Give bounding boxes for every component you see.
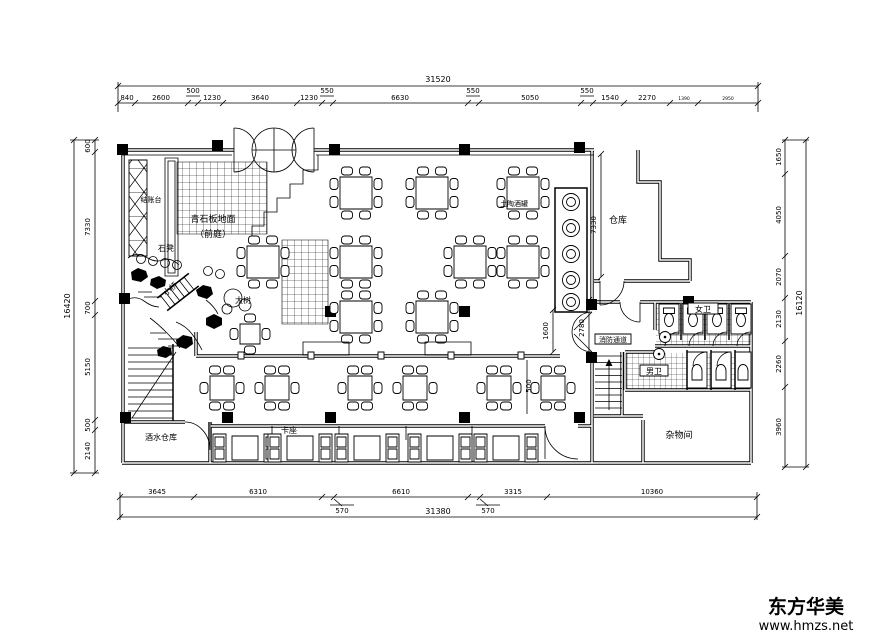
booth-seat	[213, 434, 277, 462]
dim-top-8: 550	[466, 87, 479, 95]
dim-top-9: 5050	[521, 94, 539, 102]
dining-table	[330, 291, 382, 343]
dim-bottom-3: 6610	[392, 488, 410, 496]
dim-fire-passage: 2780	[578, 319, 586, 337]
watermark-site: www.hmzs.net	[759, 619, 854, 634]
booth-seat	[268, 434, 332, 462]
booth-seat	[335, 434, 399, 462]
dim-top-0: 840	[120, 94, 133, 102]
label-cashier: 结账台	[141, 195, 162, 204]
dining-table	[497, 236, 549, 288]
dim-top-5: 1230	[300, 94, 318, 102]
dim-right-5: 3960	[775, 418, 783, 436]
dining-table	[338, 366, 382, 410]
dim-bottom-2: 570	[335, 507, 348, 515]
dining-table	[406, 167, 458, 219]
dim-left-0: 600	[84, 139, 92, 152]
dim-top-2: 500	[186, 87, 199, 95]
wine-jar-rack	[555, 188, 587, 312]
dim-left-3: 5150	[84, 358, 92, 376]
dim-left-1: 7330	[84, 218, 92, 236]
dim-left-total: 16420	[63, 293, 72, 318]
dim-warehouse-depth: 7330	[590, 216, 598, 234]
dim-right-2: 2070	[775, 268, 783, 286]
label-wine-jars: 土陶酒罐	[500, 199, 528, 208]
dim-top-3: 1230	[203, 94, 221, 102]
left-dimension-chain: 16420 600 7330 700 5150 500 2140	[63, 137, 99, 476]
dim-door-opening: 1600	[542, 322, 550, 340]
cashier-counter	[165, 158, 178, 276]
dim-right-3: 2130	[775, 310, 783, 328]
label-stone-bench: 石凳	[158, 243, 174, 253]
dim-top-total: 31520	[425, 75, 450, 84]
label-warehouse: 仓库	[609, 214, 627, 226]
dim-right-0: 1650	[775, 148, 783, 166]
dim-top-7: 6630	[391, 94, 409, 102]
dining-table	[255, 366, 299, 410]
door-arc	[620, 302, 640, 322]
label-booth-seating: 卡座	[281, 425, 297, 435]
top-dimension-chain: 31520 840 2600 500 1230 3640 1230 550 66…	[115, 75, 761, 112]
dim-left-5: 2140	[84, 442, 92, 460]
lattice-column	[129, 160, 147, 256]
dim-top-1: 2600	[152, 94, 170, 102]
dim-right-4: 2260	[775, 355, 783, 373]
dining-table	[200, 366, 244, 410]
dim-right-total: 16120	[795, 290, 804, 315]
booth-seat	[408, 434, 472, 462]
dim-bottom-6: 10360	[641, 488, 663, 496]
mens-stalls	[687, 350, 751, 390]
dining-table	[330, 167, 382, 219]
watermark-brand: 东方华美	[768, 595, 845, 618]
label-drinks-warehouse: 酒水仓库	[145, 432, 177, 442]
dim-top-4: 3640	[251, 94, 269, 102]
label-stone-floor: 青石板地面	[190, 213, 235, 225]
door-arc	[185, 422, 210, 450]
booth-row	[213, 426, 578, 462]
dim-bottom-5: 3315	[504, 488, 522, 496]
floor-plan-canvas: 31520 840 2600 500 1230 3640 1230 550 66…	[0, 0, 872, 638]
label-men-wc: 男卫	[646, 367, 662, 376]
dining-table	[531, 366, 575, 410]
label-big-tree: 大树	[235, 295, 251, 305]
floor-plan-page: 31520 840 2600 500 1230 3640 1230 550 66…	[0, 0, 872, 638]
dim-right-1: 4050	[775, 206, 783, 224]
label-fire-passage: 消防通道	[599, 335, 627, 344]
dining-table	[330, 236, 382, 288]
dim-top-13: 1390	[678, 96, 690, 102]
door-arc	[545, 426, 578, 459]
dining-table	[393, 366, 437, 410]
dim-aisle: 500	[525, 379, 533, 392]
label-women-wc: 女卫	[695, 304, 711, 314]
watermark: 东方华美 www.hmzs.net	[759, 595, 854, 634]
small-table	[230, 314, 270, 354]
dim-bottom-1: 6310	[249, 488, 267, 496]
dim-top-14: 2950	[722, 96, 734, 102]
dim-top-12: 2270	[638, 94, 656, 102]
booth-seat	[474, 434, 538, 462]
dim-top-10: 550	[580, 87, 593, 95]
dim-top-6: 550	[320, 87, 333, 95]
banquette-row	[200, 342, 575, 410]
dining-table	[406, 291, 458, 343]
dim-bottom-total: 31380	[425, 507, 450, 516]
bottom-dimension-chain: 3645 6310 570 6610 570 3315 10360 31380	[117, 488, 760, 520]
label-front-yard: （前庭）	[195, 228, 231, 240]
dim-left-4: 500	[84, 418, 92, 431]
right-dimension-chain: 16120 1650 4050 2070 2130 2260 3960	[775, 137, 809, 470]
dining-table	[477, 366, 521, 410]
staircase-right	[595, 356, 622, 410]
dining-table	[237, 236, 289, 288]
dim-bottom-4: 570	[481, 507, 494, 515]
dim-top-11: 1540	[601, 94, 619, 102]
dim-left-2: 700	[84, 301, 92, 314]
dining-table	[497, 167, 549, 219]
dining-table	[444, 236, 496, 288]
dim-bottom-0: 3645	[148, 488, 166, 496]
label-sundries-room: 杂物间	[665, 429, 692, 441]
dining-tables	[230, 167, 549, 354]
